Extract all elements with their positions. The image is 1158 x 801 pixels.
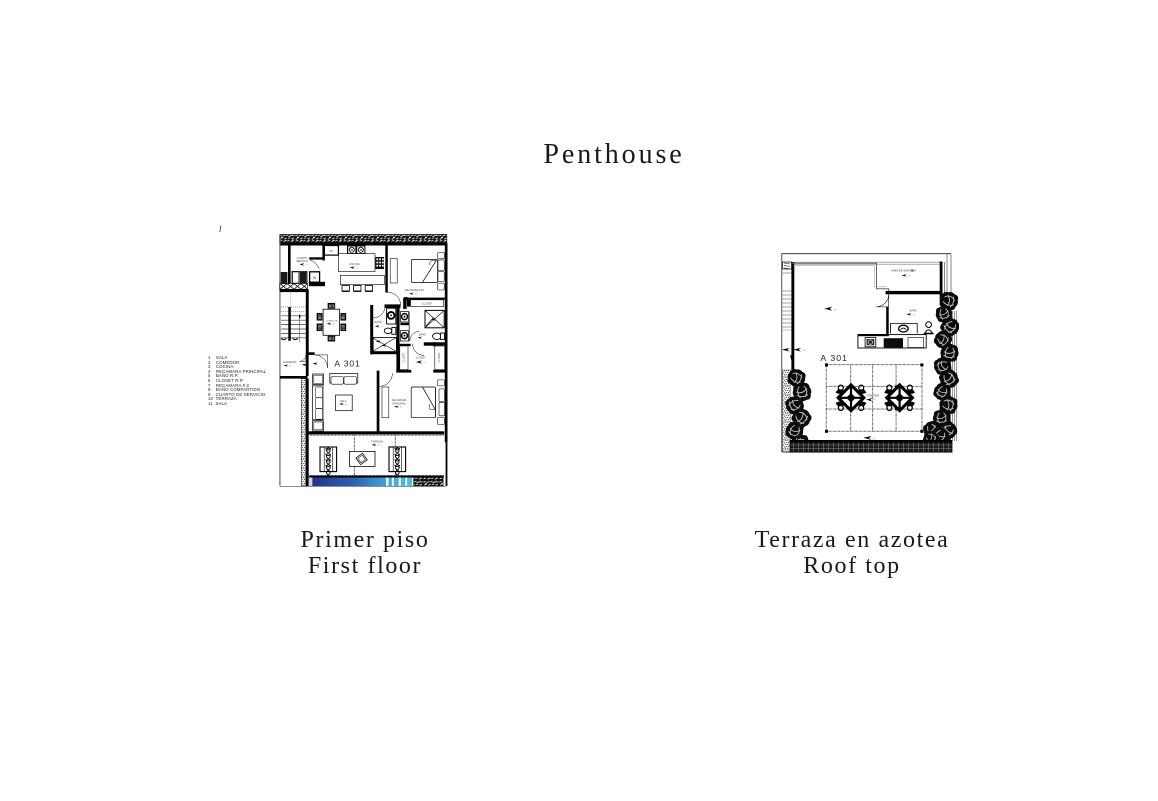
svg-text:CLOSET: CLOSET xyxy=(422,301,433,305)
svg-text:COMEDOR: COMEDOR xyxy=(326,321,338,323)
svg-text:RF: RF xyxy=(330,249,334,253)
svg-text:BAÑO: BAÑO xyxy=(375,319,382,324)
svg-text:COMEDOR: COMEDOR xyxy=(867,395,880,398)
svg-text:4.2: 4.2 xyxy=(289,366,293,368)
svg-text:RECAMARA: RECAMARA xyxy=(392,398,407,402)
svg-text:III: III xyxy=(911,269,914,273)
svg-text:4.2: 4.2 xyxy=(305,264,309,266)
svg-text:4.5: 4.5 xyxy=(913,314,917,316)
svg-text:9.5: 9.5 xyxy=(873,399,877,401)
svg-text:4.2: 4.2 xyxy=(415,294,419,296)
svg-text:10: 10 xyxy=(377,445,380,447)
svg-text:9.5: 9.5 xyxy=(834,309,838,311)
svg-text:A 301: A 301 xyxy=(820,353,848,363)
svg-text:4.2: 4.2 xyxy=(423,362,427,364)
svg-text:CLOSET: CLOSET xyxy=(416,357,426,360)
svg-text:CLOSET: CLOSET xyxy=(438,352,441,362)
svg-text:A 301: A 301 xyxy=(334,358,360,368)
svg-text:9.5: 9.5 xyxy=(803,350,807,352)
svg-text:BAÑO: BAÑO xyxy=(419,334,426,337)
svg-text:CLOSET: CLOSET xyxy=(402,352,405,362)
svg-text:PRINCIPAL: PRINCIPAL xyxy=(392,401,406,405)
svg-text:TERRAZA: TERRAZA xyxy=(371,440,383,444)
svg-text:RECAMARA #2: RECAMARA #2 xyxy=(405,288,424,292)
svg-text:SALA: SALA xyxy=(340,400,347,403)
svg-text:4.2: 4.2 xyxy=(380,326,384,328)
svg-text:9.5: 9.5 xyxy=(908,276,912,278)
svg-text:ANDADOR: ANDADOR xyxy=(283,360,296,364)
svg-text:W: W xyxy=(313,276,316,280)
svg-text:BAÑO: BAÑO xyxy=(910,307,917,312)
svg-text:COCINA: COCINA xyxy=(349,262,360,266)
svg-text:SERVICIO: SERVICIO xyxy=(296,260,308,263)
svg-text:4.2: 4.2 xyxy=(400,407,404,409)
